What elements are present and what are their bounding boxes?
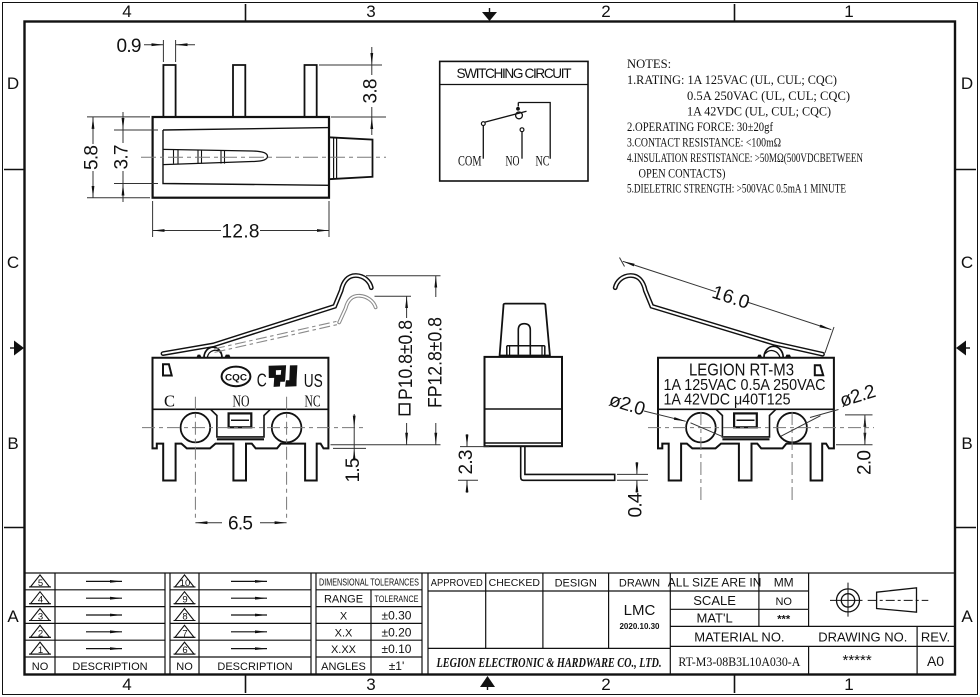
svg-text:C: C: [257, 371, 267, 391]
svg-text:3: 3: [366, 2, 375, 21]
svg-text:2: 2: [38, 628, 43, 639]
svg-text:C: C: [961, 253, 973, 272]
svg-text:C: C: [164, 392, 175, 411]
svg-text:1.5: 1.5: [343, 458, 364, 483]
svg-text:REV.: REV.: [921, 630, 950, 645]
svg-text:D: D: [961, 74, 973, 93]
svg-text:NC: NC: [305, 392, 321, 411]
svg-text:A: A: [961, 607, 973, 626]
svg-text:0.9: 0.9: [117, 36, 142, 57]
svg-text:NO: NO: [233, 392, 250, 411]
svg-text:0.5A 250VAC (UL, CUL; CQC): 0.5A 250VAC (UL, CUL; CQC): [687, 89, 850, 103]
svg-text:6: 6: [182, 645, 187, 656]
svg-text:1.RATING: 1A 125VAC (UL, CUL;: 1.RATING: 1A 125VAC (UL, CUL; CQC): [627, 73, 837, 87]
svg-text:1: 1: [38, 645, 43, 656]
svg-text:1A 42VDC μ40T125: 1A 42VDC μ40T125: [664, 392, 791, 409]
svg-text:5.DIELETRIC STRENGTH: >500VAC: 5.DIELETRIC STRENGTH: >500VAC 0.5mA 1 MI…: [627, 182, 846, 196]
svg-text:LMC: LMC: [624, 602, 656, 619]
svg-text:*****: *****: [843, 652, 872, 669]
svg-text:±0.10: ±0.10: [382, 642, 412, 656]
svg-text:X.X: X.X: [335, 627, 353, 639]
svg-text:OPEN CONTACTS): OPEN CONTACTS): [639, 167, 726, 181]
svg-text:CHECKED: CHECKED: [489, 577, 541, 589]
svg-text:B: B: [961, 434, 972, 453]
svg-text:4: 4: [122, 2, 131, 21]
svg-text:1: 1: [844, 675, 853, 694]
svg-text:COM: COM: [458, 154, 482, 170]
svg-text:7: 7: [182, 628, 187, 639]
svg-text:LEGION ELECTRONIC & HARDWAR: LEGION ELECTRONIC & HARDWARE CO., LTD.: [436, 655, 662, 670]
svg-text:3: 3: [366, 675, 375, 694]
svg-text:1A 42VDC (UL, CUL; CQC): 1A 42VDC (UL, CUL; CQC): [687, 105, 831, 119]
svg-text:D: D: [7, 74, 19, 93]
svg-text:9: 9: [182, 595, 187, 606]
svg-text:MATERIAL NO.: MATERIAL NO.: [694, 630, 784, 645]
svg-text:DESIGN: DESIGN: [555, 578, 597, 590]
svg-text:FP12.8±0.8: FP12.8±0.8: [425, 317, 446, 408]
svg-text:3.CONTACT RESISTANCE: <100mΩ: 3.CONTACT RESISTANCE: <100mΩ: [627, 136, 781, 150]
svg-text:0.4: 0.4: [626, 492, 647, 517]
svg-text:DIMENSIONAL TOLERANCES: DIMENSIONAL TOLERANCES: [319, 578, 419, 589]
svg-text:B: B: [7, 434, 18, 453]
svg-text:±1': ±1': [389, 659, 405, 673]
svg-text:2.0: 2.0: [854, 450, 875, 475]
svg-text:6.5: 6.5: [228, 514, 253, 535]
svg-text:2020.10.30: 2020.10.30: [619, 622, 660, 631]
svg-text:US: US: [304, 371, 323, 391]
svg-text:2.OPERATING FORCE: 30±20gf: 2.OPERATING FORCE: 30±20gf: [627, 120, 774, 134]
svg-text:3.7: 3.7: [112, 145, 133, 170]
svg-text:C: C: [7, 253, 19, 272]
svg-text:APPROVED: APPROVED: [431, 577, 483, 589]
svg-text:±0.30: ±0.30: [382, 609, 412, 623]
svg-text:DESCRIPTION: DESCRIPTION: [72, 661, 147, 673]
svg-text:4: 4: [122, 675, 131, 694]
svg-text:NOTES:: NOTES:: [627, 57, 671, 71]
svg-text:DESCRIPTION: DESCRIPTION: [217, 661, 292, 673]
svg-text:MM: MM: [774, 576, 794, 590]
svg-text:NO: NO: [32, 661, 49, 673]
svg-text:NO: NO: [506, 154, 520, 170]
svg-text:5.8: 5.8: [82, 145, 103, 170]
svg-text:X.XX: X.XX: [331, 644, 357, 656]
svg-text:CQC: CQC: [225, 373, 247, 384]
svg-text:4.INSULATION RESTISTANCE: >50M: 4.INSULATION RESTISTANCE: >50MΩ(500VDCBE…: [627, 151, 863, 165]
svg-text:8: 8: [182, 612, 187, 623]
svg-text:***: ***: [777, 614, 791, 626]
svg-text:2: 2: [601, 675, 610, 694]
svg-text:MAT'L: MAT'L: [696, 611, 732, 626]
svg-text:NO: NO: [176, 661, 193, 673]
svg-text:SCALE: SCALE: [693, 593, 736, 608]
svg-text:SWITCHING CIRCUIT: SWITCHING CIRCUIT: [457, 66, 572, 81]
svg-text:12.8: 12.8: [222, 222, 260, 243]
svg-text:RANGE: RANGE: [324, 594, 363, 606]
svg-text:4: 4: [38, 595, 43, 606]
svg-text:10: 10: [180, 578, 191, 589]
svg-text:3.8: 3.8: [361, 79, 382, 104]
svg-text:TOLERANCE: TOLERANCE: [375, 594, 419, 605]
svg-text:5: 5: [38, 578, 43, 589]
svg-text:1: 1: [844, 2, 853, 21]
svg-text:RT-M3-08B3L10A030-A: RT-M3-08B3L10A030-A: [678, 655, 800, 669]
svg-text:A: A: [7, 607, 19, 626]
svg-text:2: 2: [601, 2, 610, 21]
svg-text:ANGLES: ANGLES: [321, 661, 366, 673]
svg-text:NO: NO: [775, 596, 792, 608]
svg-text:ALL SIZE ARE IN: ALL SIZE ARE IN: [668, 576, 762, 590]
svg-text:2.3: 2.3: [456, 450, 477, 475]
svg-text:DRAWING NO.: DRAWING NO.: [818, 630, 907, 645]
svg-text:NC: NC: [536, 154, 550, 170]
svg-text:X: X: [340, 611, 348, 623]
svg-text:3: 3: [38, 612, 43, 623]
svg-text:P10.8±0.8: P10.8±0.8: [396, 320, 417, 400]
svg-text:A0: A0: [927, 653, 944, 669]
svg-text:±0.20: ±0.20: [382, 625, 412, 639]
svg-text:DRAWN: DRAWN: [619, 578, 660, 590]
